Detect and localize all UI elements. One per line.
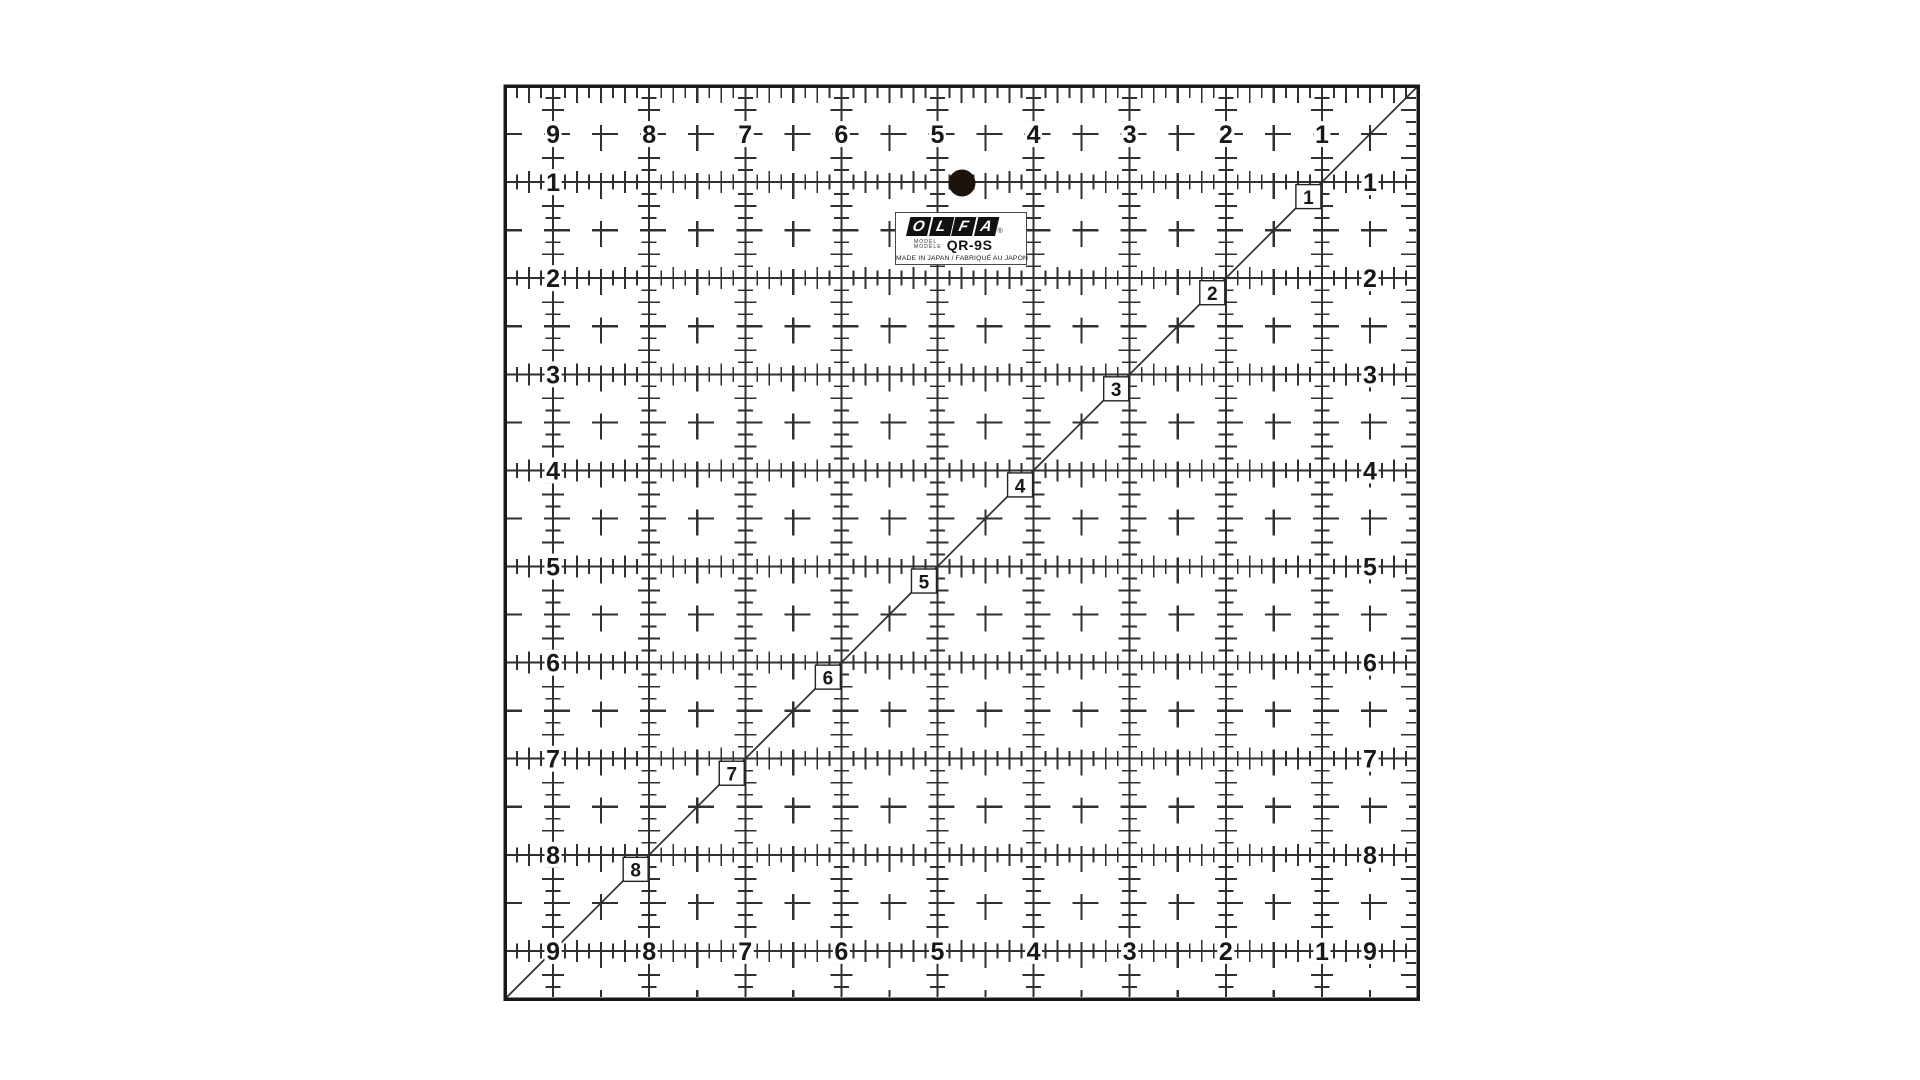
svg-text:2: 2 (546, 265, 560, 293)
svg-text:7: 7 (546, 746, 560, 774)
svg-text:9: 9 (1363, 938, 1377, 966)
svg-text:3: 3 (1111, 380, 1122, 401)
svg-text:4: 4 (1027, 121, 1041, 149)
registered-trademark-symbol: ® (998, 228, 1003, 236)
svg-text:1: 1 (546, 169, 560, 197)
svg-text:4: 4 (1027, 938, 1041, 966)
svg-text:3: 3 (1123, 938, 1137, 966)
svg-text:7: 7 (726, 765, 737, 786)
svg-text:5: 5 (1363, 554, 1377, 582)
svg-text:7: 7 (738, 121, 752, 149)
svg-text:3: 3 (1123, 121, 1137, 149)
svg-text:5: 5 (931, 121, 945, 149)
model-number: QR-9S (947, 237, 993, 253)
svg-text:8: 8 (642, 938, 656, 966)
ruler-graphic: 1234567898765432112345678912345678998765… (0, 0, 1920, 1080)
svg-text:5: 5 (546, 554, 560, 582)
model-heading: MODEL MODÈLE (914, 240, 942, 251)
olfa-label: O L F A ® MODEL MODÈLE QR-9S MADE IN JAP… (895, 212, 1027, 265)
svg-text:2: 2 (1363, 265, 1377, 293)
svg-text:7: 7 (738, 938, 752, 966)
olfa-logo-letter: O (906, 217, 931, 236)
svg-text:8: 8 (630, 861, 641, 882)
svg-text:4: 4 (1015, 476, 1026, 497)
svg-text:5: 5 (919, 572, 930, 593)
svg-text:6: 6 (1363, 650, 1377, 678)
svg-text:4: 4 (1363, 457, 1377, 485)
svg-text:9: 9 (546, 938, 560, 966)
svg-text:6: 6 (546, 650, 560, 678)
svg-text:2: 2 (1219, 938, 1233, 966)
svg-text:8: 8 (1363, 842, 1377, 870)
svg-text:1: 1 (1315, 121, 1329, 149)
svg-text:6: 6 (834, 938, 848, 966)
model-heading-fr: MODÈLE (914, 245, 942, 251)
model-row: MODEL MODÈLE QR-9S (914, 237, 1026, 253)
olfa-logo-row: O L F A ® (906, 217, 1026, 236)
origin-text: MADE IN JAPAN / FABRIQUÉ AU JAPON (896, 255, 1026, 262)
svg-text:1: 1 (1303, 188, 1314, 209)
svg-text:2: 2 (1207, 284, 1218, 305)
olfa-logo: O L F A (906, 217, 999, 236)
svg-text:7: 7 (1363, 746, 1377, 774)
svg-text:8: 8 (642, 121, 656, 149)
svg-text:6: 6 (823, 668, 834, 689)
product-photo: 1234567898765432112345678912345678998765… (0, 0, 1920, 1080)
svg-text:3: 3 (546, 361, 560, 389)
olfa-logo-letter: F (951, 217, 976, 236)
svg-text:4: 4 (546, 457, 560, 485)
svg-text:6: 6 (834, 121, 848, 149)
svg-text:9: 9 (546, 121, 560, 149)
svg-text:8: 8 (546, 842, 560, 870)
svg-text:1: 1 (1363, 169, 1377, 197)
svg-text:5: 5 (931, 938, 945, 966)
svg-text:3: 3 (1363, 361, 1377, 389)
olfa-logo-letter: L (929, 217, 954, 236)
olfa-logo-letter: A (974, 217, 999, 236)
hanging-hole (949, 170, 976, 197)
svg-text:2: 2 (1219, 121, 1233, 149)
svg-text:1: 1 (1315, 938, 1329, 966)
